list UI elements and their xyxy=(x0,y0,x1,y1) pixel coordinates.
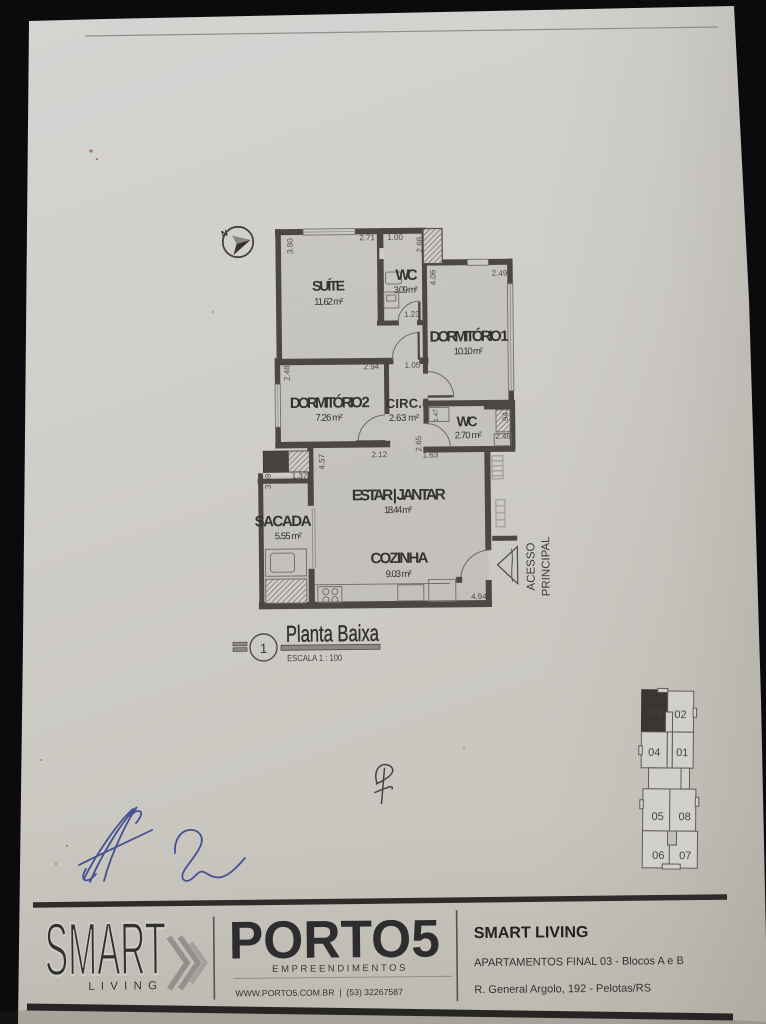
svg-text:1.00: 1.00 xyxy=(387,233,403,242)
svg-text:2.12: 2.12 xyxy=(372,450,388,459)
svg-text:2.71: 2.71 xyxy=(359,233,375,242)
svg-text:7.26 m²: 7.26 m² xyxy=(315,412,342,423)
svg-text:DORMITÓRIO 2: DORMITÓRIO 2 xyxy=(290,393,370,412)
svg-text:1.23: 1.23 xyxy=(404,310,420,319)
svg-text:3.89: 3.89 xyxy=(264,473,273,489)
svg-text:SACADA: SACADA xyxy=(254,513,311,531)
svg-text:2.63 m²: 2.63 m² xyxy=(389,413,419,424)
svg-text:3.09 m²: 3.09 m² xyxy=(394,285,418,296)
svg-text:R. General Argolo, 192 - Pelot: R. General Argolo, 192 - Pelotas/RS xyxy=(474,982,651,996)
svg-text:4.06: 4.06 xyxy=(428,269,437,285)
svg-text:Planta Baixa: Planta Baixa xyxy=(286,620,379,647)
svg-text:02: 02 xyxy=(674,709,686,721)
svg-text:1.47: 1.47 xyxy=(433,409,440,422)
svg-text:06: 06 xyxy=(652,850,664,862)
svg-text:PORTO5: PORTO5 xyxy=(229,909,441,970)
svg-text:EMPREENDIMENTOS: EMPREENDIMENTOS xyxy=(272,963,408,975)
svg-text:18.44 m²: 18.44 m² xyxy=(384,505,412,516)
svg-text:2.94: 2.94 xyxy=(364,362,380,371)
svg-text:DORMITÓRIO 1: DORMITÓRIO 1 xyxy=(430,327,509,346)
svg-text:2.70 m²: 2.70 m² xyxy=(455,430,482,441)
svg-text:07: 07 xyxy=(679,850,691,862)
svg-text:WC: WC xyxy=(456,413,477,429)
svg-text:ESTAR | JANTAR: ESTAR | JANTAR xyxy=(352,486,446,504)
svg-text:2.68: 2.68 xyxy=(415,236,424,252)
svg-text:03: 03 xyxy=(649,707,661,719)
svg-text:3.80: 3.80 xyxy=(286,238,295,254)
svg-text:01: 01 xyxy=(676,747,688,759)
svg-text:.94: .94 xyxy=(501,412,510,424)
svg-text:2.49: 2.49 xyxy=(492,269,508,278)
svg-text:1: 1 xyxy=(260,641,268,656)
svg-text:LIVING: LIVING xyxy=(88,980,163,993)
svg-text:2.49: 2.49 xyxy=(495,432,511,441)
svg-text:5.55 m²: 5.55 m² xyxy=(275,531,302,542)
svg-text:ESCALA 1 : 100: ESCALA 1 : 100 xyxy=(287,653,342,664)
svg-text:PRINCIPAL: PRINCIPAL xyxy=(540,536,553,597)
svg-text:4.94: 4.94 xyxy=(471,592,487,601)
svg-text:SUÍTE: SUÍTE xyxy=(312,277,345,293)
svg-text:2.48: 2.48 xyxy=(282,365,291,381)
svg-text:SMART LIVING: SMART LIVING xyxy=(474,924,589,942)
svg-text:APARTAMENTOS FINAL 03 - Blocos: APARTAMENTOS FINAL 03 - Blocos A e B xyxy=(474,955,684,969)
svg-text:9.03 m²: 9.03 m² xyxy=(386,569,412,580)
svg-text:08: 08 xyxy=(678,811,690,823)
svg-text:WC: WC xyxy=(395,267,417,284)
svg-text:2.65: 2.65 xyxy=(414,435,423,451)
svg-text:WWW.PORTO5.COM.BR | (53) 322: WWW.PORTO5.COM.BR | (53) 32267587 xyxy=(235,987,403,999)
svg-text:ACESSO: ACESSO xyxy=(525,542,538,590)
svg-text:1.63: 1.63 xyxy=(423,450,439,459)
svg-text:11.62 m²: 11.62 m² xyxy=(314,296,343,307)
svg-text:05: 05 xyxy=(652,811,664,823)
svg-text:SMART: SMART xyxy=(45,906,167,991)
svg-text:1.37: 1.37 xyxy=(292,471,308,480)
svg-text:1.05: 1.05 xyxy=(405,361,421,370)
svg-text:COZINHA: COZINHA xyxy=(370,550,428,568)
svg-text:04: 04 xyxy=(648,747,660,759)
svg-text:4.57: 4.57 xyxy=(317,453,326,469)
svg-text:10.10 m²: 10.10 m² xyxy=(454,346,483,357)
svg-text:CIRC.: CIRC. xyxy=(386,396,422,411)
